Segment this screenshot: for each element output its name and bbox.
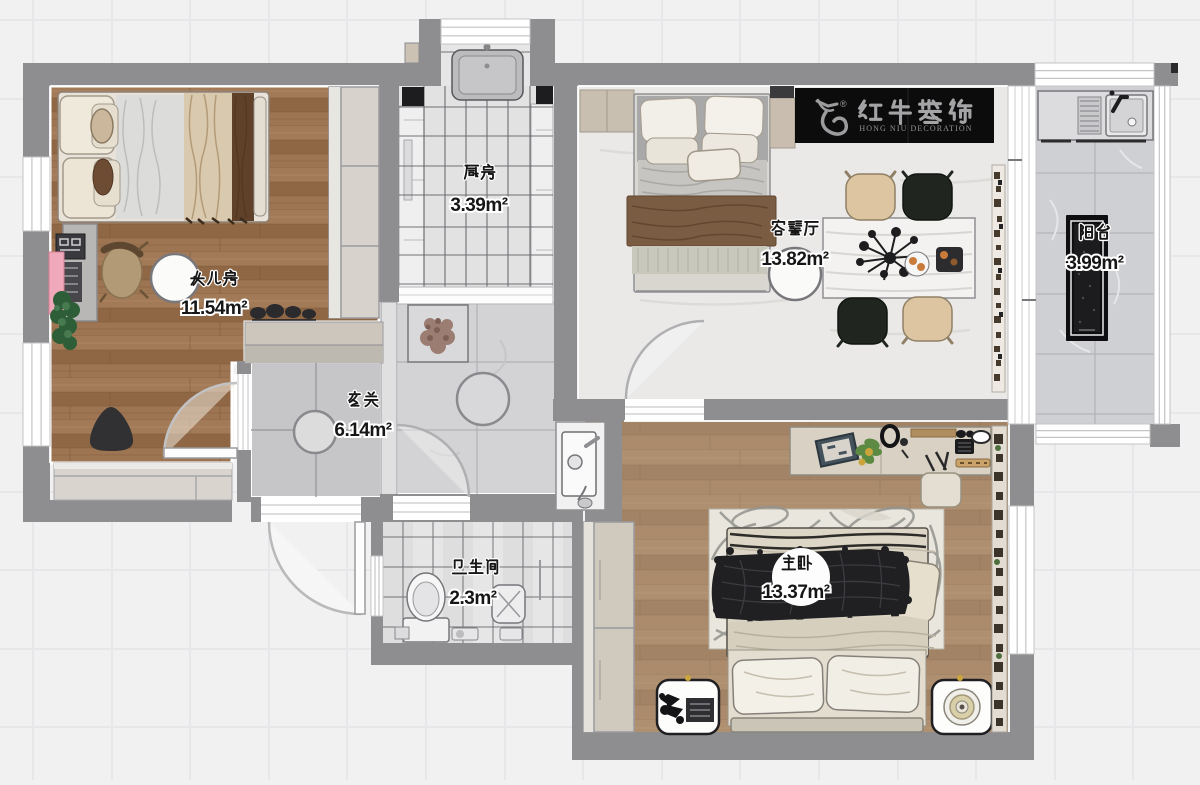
svg-text:3.39m²: 3.39m² xyxy=(450,195,507,216)
svg-text:2.3m²: 2.3m² xyxy=(449,588,496,609)
svg-text:3.99m²: 3.99m² xyxy=(1066,253,1123,274)
svg-text:HONG NIU DECORATION: HONG NIU DECORATION xyxy=(859,124,972,133)
svg-text:6.14m²: 6.14m² xyxy=(334,420,391,441)
svg-text:13.37m²: 13.37m² xyxy=(762,582,829,603)
svg-text:®: ® xyxy=(840,99,847,109)
svg-text:13.82m²: 13.82m² xyxy=(761,249,828,270)
svg-text:11.54m²: 11.54m² xyxy=(181,298,247,319)
